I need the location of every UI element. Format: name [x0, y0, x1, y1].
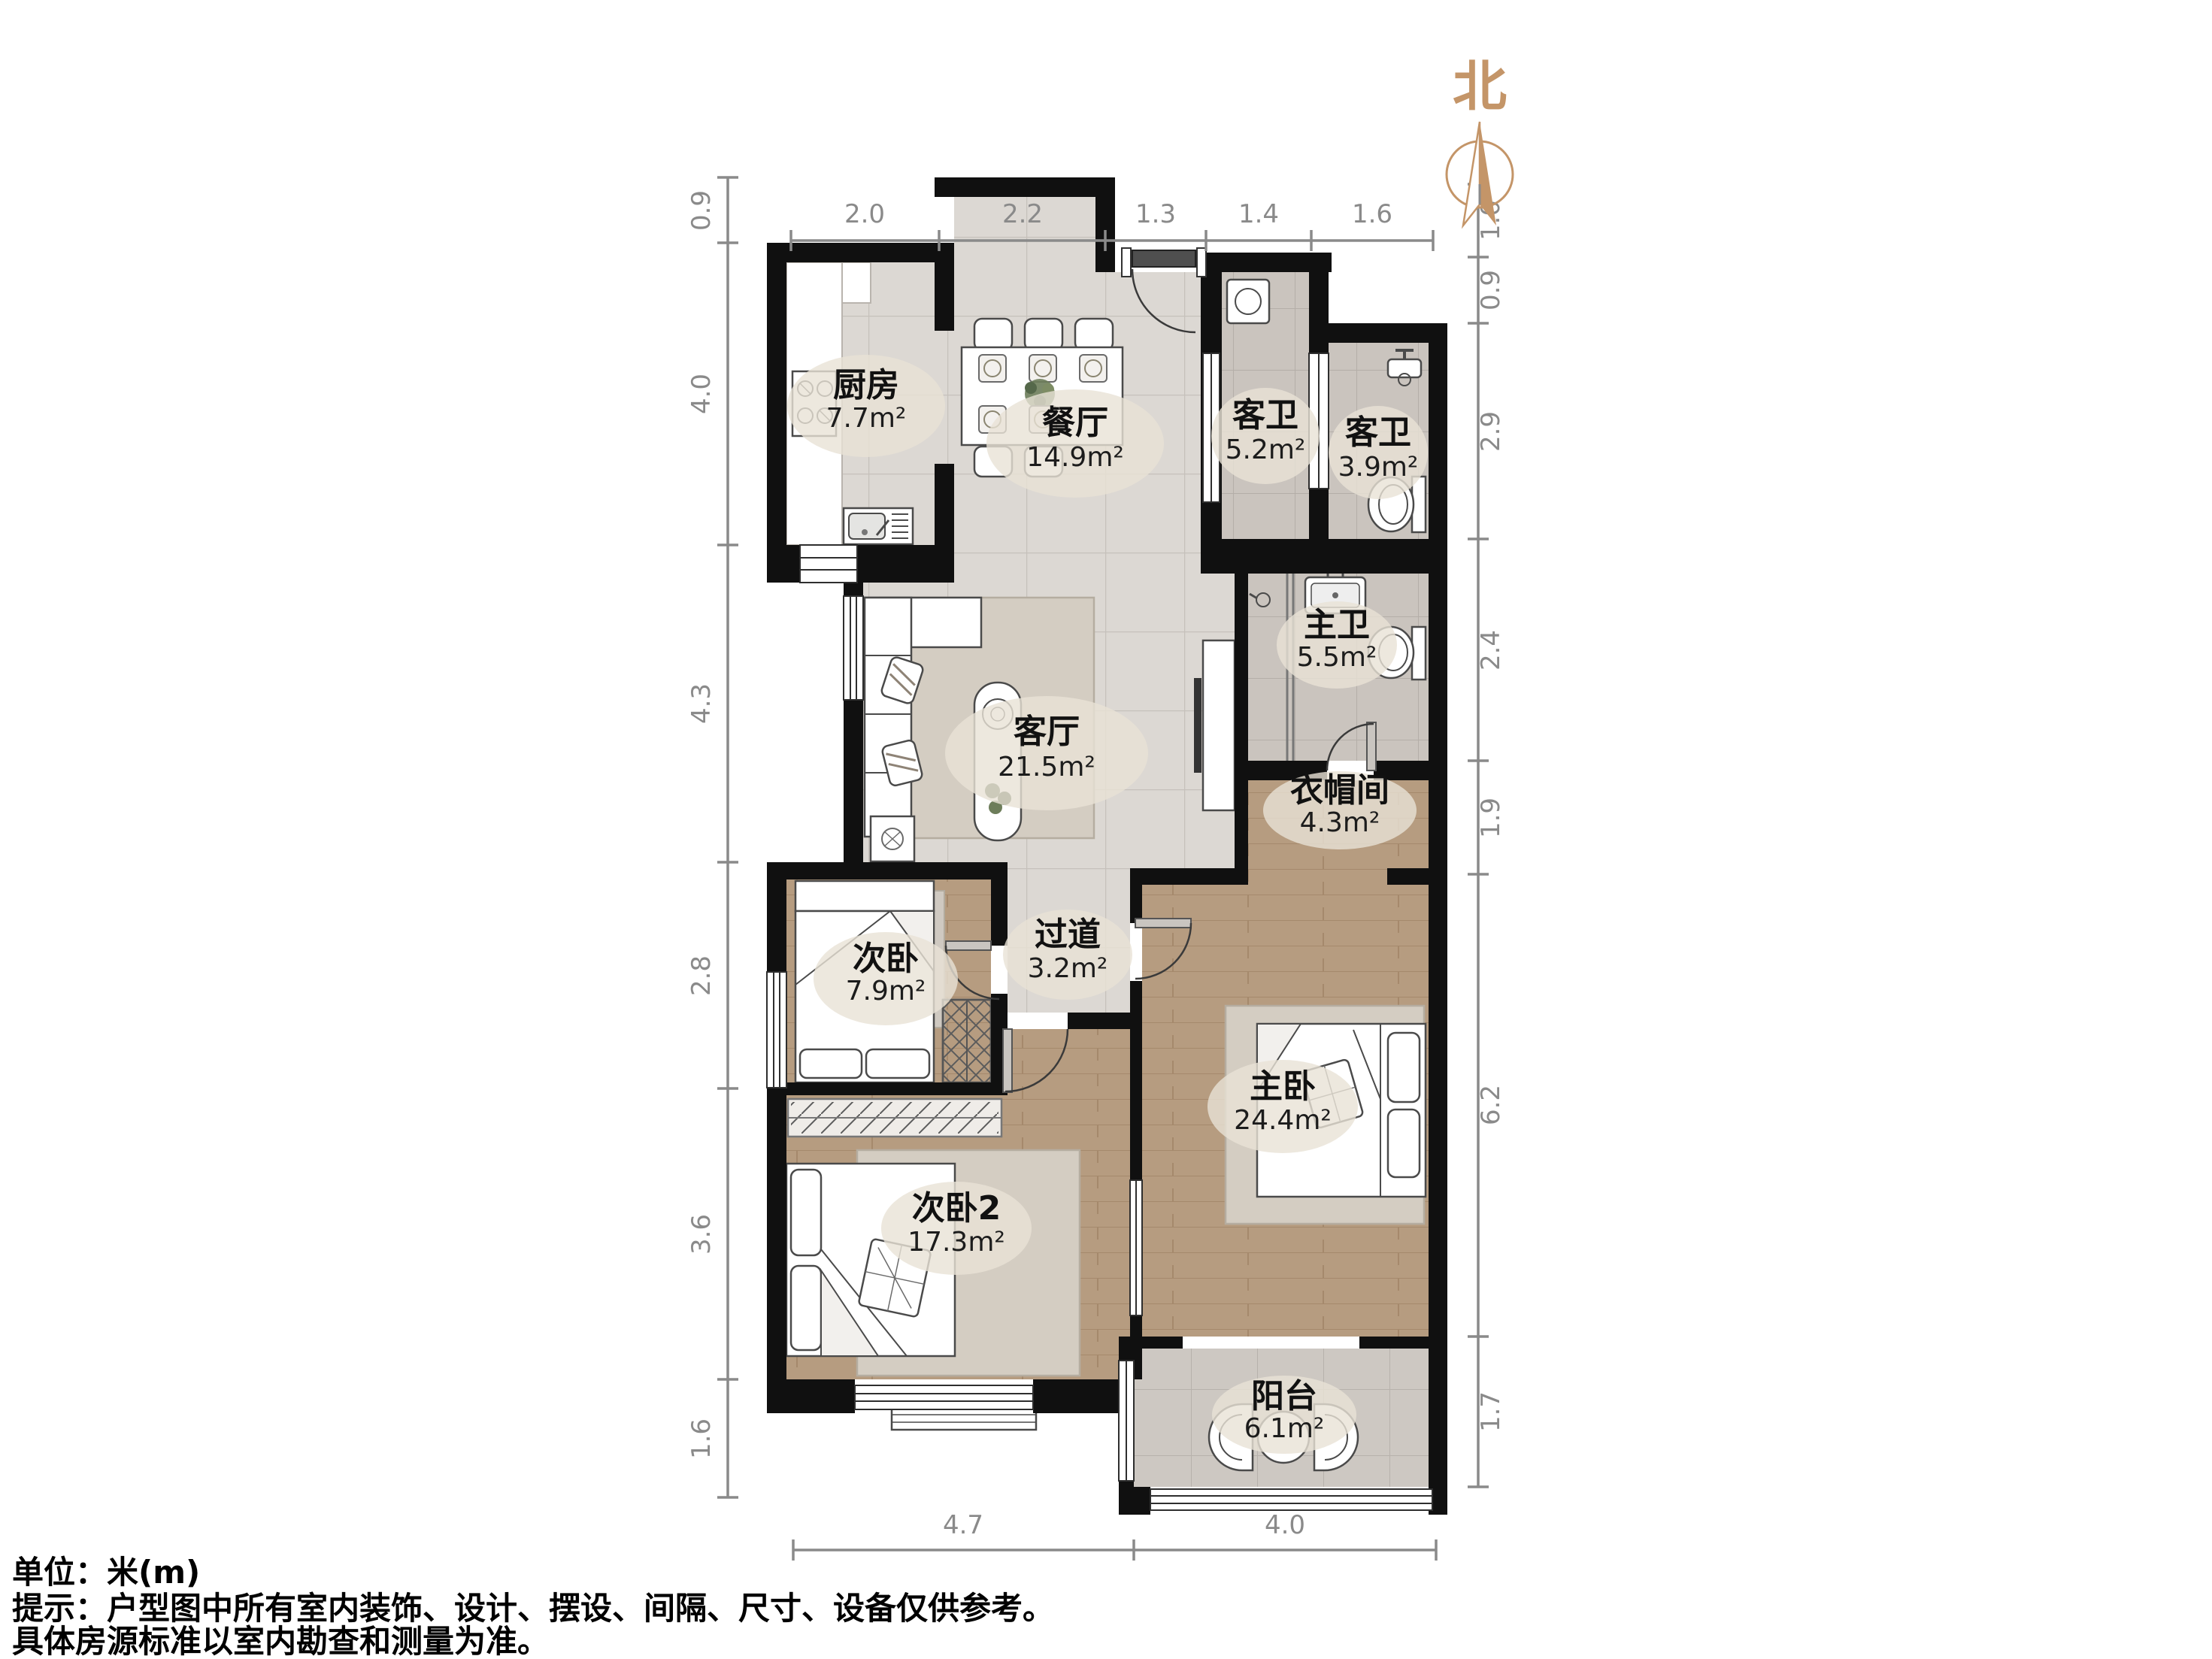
room-label-guest-bath: 客卫 5.2m²	[1211, 388, 1320, 484]
dim-label: 1.6	[1352, 199, 1392, 229]
corridor-floor	[1008, 1029, 1130, 1095]
dim-label: 0.9	[1476, 270, 1506, 310]
dim-label: 2.4	[1476, 630, 1506, 671]
balcony-left-window	[1119, 1361, 1134, 1481]
room-name: 厨房	[833, 366, 899, 404]
pillow	[791, 1170, 821, 1255]
room-label-kitchen: 厨房 7.7m²	[787, 355, 945, 457]
dim-label: 4.3	[686, 683, 717, 724]
room-name: 主卫	[1304, 606, 1370, 644]
room-label-balcony: 阳台 6.1m²	[1212, 1376, 1356, 1454]
room-label-master-bedroom: 主卧 24.4m²	[1208, 1060, 1358, 1153]
room-label-bedroom2: 次卧2 17.3m²	[881, 1182, 1032, 1275]
room-label-hallway: 过道 3.2m²	[1003, 910, 1132, 1000]
dim-label: 6.2	[1476, 1085, 1506, 1125]
room-label-living: 客厅 21.5m²	[945, 696, 1148, 810]
pillow	[866, 1049, 929, 1078]
dim-label: 2.2	[1002, 199, 1043, 229]
disclaimer-line2: 具体房源标准以室内勘查和测量为准。	[12, 1623, 549, 1659]
dim-label: 2.8	[686, 955, 717, 996]
bedroom-window	[767, 972, 786, 1088]
north-label: 北	[1453, 55, 1507, 118]
sofa	[865, 598, 911, 837]
dimension-left: 0.9 4.0 4.3 2.8 3.6 1.6	[686, 177, 738, 1497]
floorplan-page: 厨房 7.7m² 餐厅 14.9m² 客卫 5.2m² 客卫 3.9m² 主卫 …	[0, 0, 2212, 1659]
dim-label: 1.9	[1476, 798, 1506, 838]
room-area: 5.2m²	[1226, 434, 1306, 465]
north-indicator: 北	[1447, 55, 1513, 226]
dining-chair	[1075, 319, 1113, 350]
room-label-dining: 餐厅 14.9m²	[986, 389, 1164, 498]
room-area: 3.9m²	[1338, 452, 1419, 483]
tv-console	[1203, 640, 1235, 810]
room-area: 14.9m²	[1026, 442, 1124, 473]
room-label-guest-bath2: 客卫 3.9m²	[1329, 406, 1428, 499]
room-name: 次卧2	[912, 1189, 1001, 1228]
dim-label: 3.6	[686, 1214, 717, 1255]
dim-label: 4.0	[686, 374, 717, 414]
room-area: 7.9m²	[846, 976, 926, 1007]
room-name: 餐厅	[1042, 404, 1108, 442]
dimension-right: 1.0 0.9 2.9 2.4 1.9 6.2 1.7	[1468, 184, 1506, 1487]
dim-label: 4.0	[1265, 1510, 1305, 1540]
room-area: 5.5m²	[1297, 642, 1377, 673]
dim-label: 1.3	[1135, 199, 1176, 229]
pillow	[1388, 1110, 1420, 1177]
room-label-cloakroom: 衣帽间 4.3m²	[1263, 771, 1417, 849]
room-name: 主卧	[1250, 1067, 1316, 1106]
dim-label: 0.9	[686, 190, 717, 231]
bed-headboard	[795, 881, 934, 911]
dim-label: 1.6	[686, 1418, 717, 1459]
room-area: 3.2m²	[1028, 953, 1108, 984]
disclaimer-line1: 提示：户型图中所有室内装饰、设计、摆设、间隔、尺寸、设备仅供参考。	[12, 1590, 1054, 1627]
washer-icon	[1227, 280, 1269, 323]
dim-label: 1.4	[1238, 199, 1279, 229]
dim-label: 2.9	[1476, 411, 1506, 452]
room-name: 客厅	[1014, 713, 1080, 751]
room-area: 7.7m²	[826, 403, 907, 434]
room-name: 阳台	[1251, 1377, 1317, 1415]
living-window	[844, 596, 863, 700]
dim-label: 1.7	[1476, 1391, 1506, 1432]
kitchen-window	[800, 545, 857, 583]
room-label-master-bath: 主卫 5.5m²	[1277, 601, 1397, 689]
guest-bath-fixtures	[1227, 280, 1269, 323]
ac-ledge	[892, 1407, 1036, 1430]
master-wall-window	[1130, 1180, 1142, 1315]
pillow	[800, 1049, 862, 1078]
room-name: 过道	[1035, 916, 1101, 954]
notes: 单位：米(m) 提示：户型图中所有室内装饰、设计、摆设、间隔、尺寸、设备仅供参考…	[12, 1554, 1054, 1659]
kitchen-counter-corner	[842, 262, 871, 303]
entry-door-leaf	[1132, 250, 1195, 267]
closet-band	[788, 1099, 1001, 1137]
room-name: 客卫	[1232, 396, 1298, 434]
room-name: 次卧	[853, 940, 919, 978]
basin-icon	[1388, 359, 1421, 377]
floorplan-canvas: 厨房 7.7m² 餐厅 14.9m² 客卫 5.2m² 客卫 3.9m² 主卫 …	[0, 0, 2212, 1659]
room-area: 6.1m²	[1244, 1413, 1325, 1444]
tv-icon	[1194, 678, 1201, 773]
room-name: 衣帽间	[1290, 771, 1389, 810]
room-name: 客卫	[1345, 413, 1411, 452]
pillow	[791, 1266, 821, 1350]
dim-label: 2.0	[844, 199, 885, 229]
unit-note: 单位：米(m)	[12, 1554, 200, 1591]
room-area: 4.3m²	[1300, 807, 1380, 838]
room-label-bedroom: 次卧 7.9m²	[814, 932, 958, 1025]
dining-chair	[974, 319, 1012, 350]
dim-label: 4.7	[943, 1510, 983, 1540]
bedroom2-window	[855, 1385, 1033, 1409]
dimension-bottom: 4.7 4.0	[793, 1510, 1436, 1561]
room-area: 17.3m²	[908, 1227, 1005, 1258]
dining-chair	[1025, 319, 1062, 350]
pillow	[1388, 1033, 1420, 1102]
balcony-window	[1150, 1489, 1432, 1510]
room-area: 24.4m²	[1234, 1105, 1332, 1136]
room-area: 21.5m²	[998, 752, 1095, 783]
